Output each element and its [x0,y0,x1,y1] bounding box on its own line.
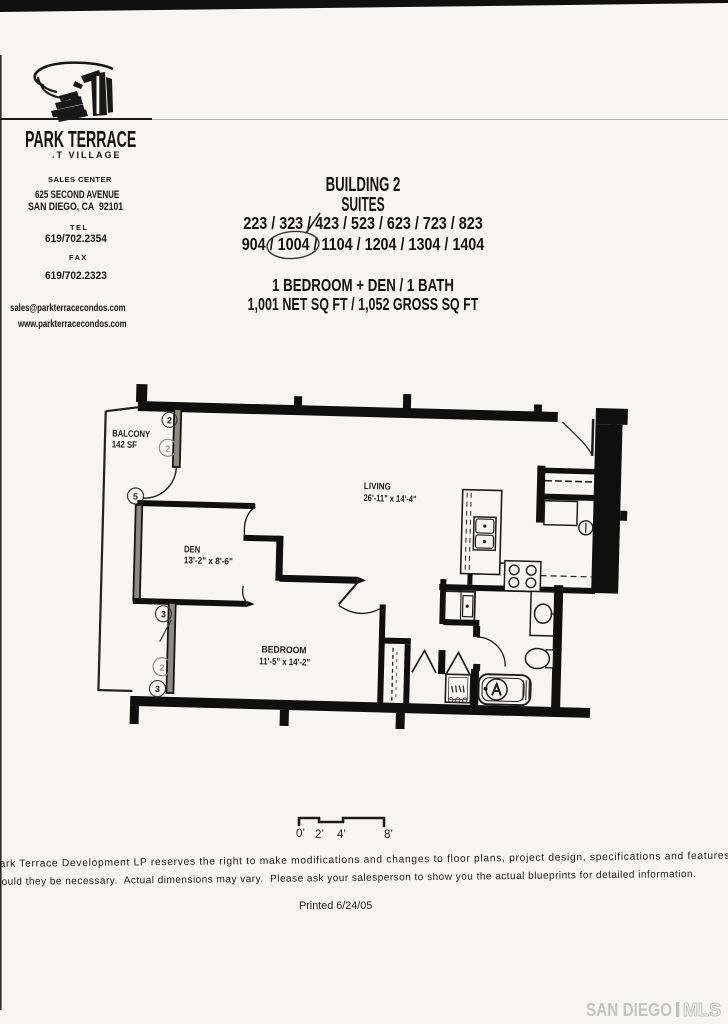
svg-text:4’: 4’ [337,829,346,841]
svg-text:5: 5 [133,491,138,501]
svg-text:2: 2 [165,444,170,454]
svg-text:3: 3 [161,609,166,619]
svg-text:26'-11" x 14'-4": 26'-11" x 14'-4" [363,493,416,505]
svg-text:142 SF: 142 SF [112,439,137,451]
svg-text:BEDROOM: BEDROOM [261,644,306,656]
svg-text:13'-2" x 8'-6": 13'-2" x 8'-6" [184,555,233,567]
svg-text:0’: 0’ [296,828,305,840]
svg-text:8’: 8’ [384,829,393,841]
svg-text:2: 2 [159,663,164,673]
svg-text:MLS: MLS [683,1000,721,1020]
svg-text:LIVING: LIVING [364,481,391,493]
svg-text:DEN: DEN [184,544,200,555]
svg-text:3: 3 [155,684,160,694]
svg-text:11'-5" x 14'-2": 11'-5" x 14'-2" [259,656,310,668]
svg-text:SAN DIEGO: SAN DIEGO [586,1000,672,1020]
svg-text:2’: 2’ [315,829,324,841]
svg-text:2: 2 [167,415,172,425]
